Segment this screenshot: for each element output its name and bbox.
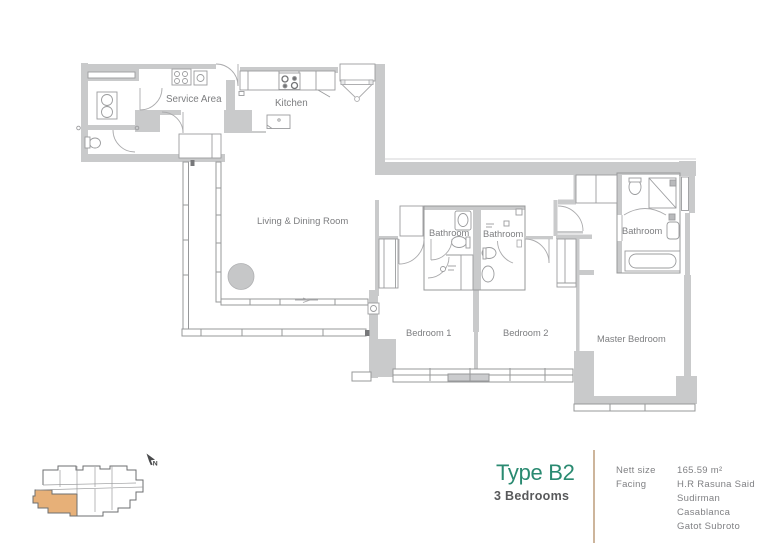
svg-text:Type B2: Type B2 <box>496 460 575 485</box>
svg-text:Bedroom 2: Bedroom 2 <box>503 328 548 338</box>
svg-text:Bedroom 1: Bedroom 1 <box>406 328 451 338</box>
svg-text:Facing: Facing <box>616 479 646 490</box>
svg-text:Bathroom: Bathroom <box>429 228 470 238</box>
svg-text:3 Bedrooms: 3 Bedrooms <box>494 489 569 503</box>
svg-text:Service Area: Service Area <box>166 94 222 105</box>
svg-text:N: N <box>153 461 158 468</box>
svg-text:Living & Dining Room: Living & Dining Room <box>257 216 348 227</box>
svg-text:Kitchen: Kitchen <box>275 98 308 109</box>
svg-text:Bathroom: Bathroom <box>483 229 524 239</box>
svg-text:Master Bedroom: Master Bedroom <box>597 334 666 344</box>
svg-text:Gatot Subroto: Gatot Subroto <box>677 521 740 532</box>
svg-text:H.R Rasuna Said: H.R Rasuna Said <box>677 479 755 490</box>
svg-text:165.59 m²: 165.59 m² <box>677 465 722 476</box>
svg-text:Nett size: Nett size <box>616 465 656 476</box>
svg-text:Casablanca: Casablanca <box>677 507 731 518</box>
svg-text:Bathroom: Bathroom <box>622 226 663 236</box>
svg-text:Sudirman: Sudirman <box>677 493 720 504</box>
